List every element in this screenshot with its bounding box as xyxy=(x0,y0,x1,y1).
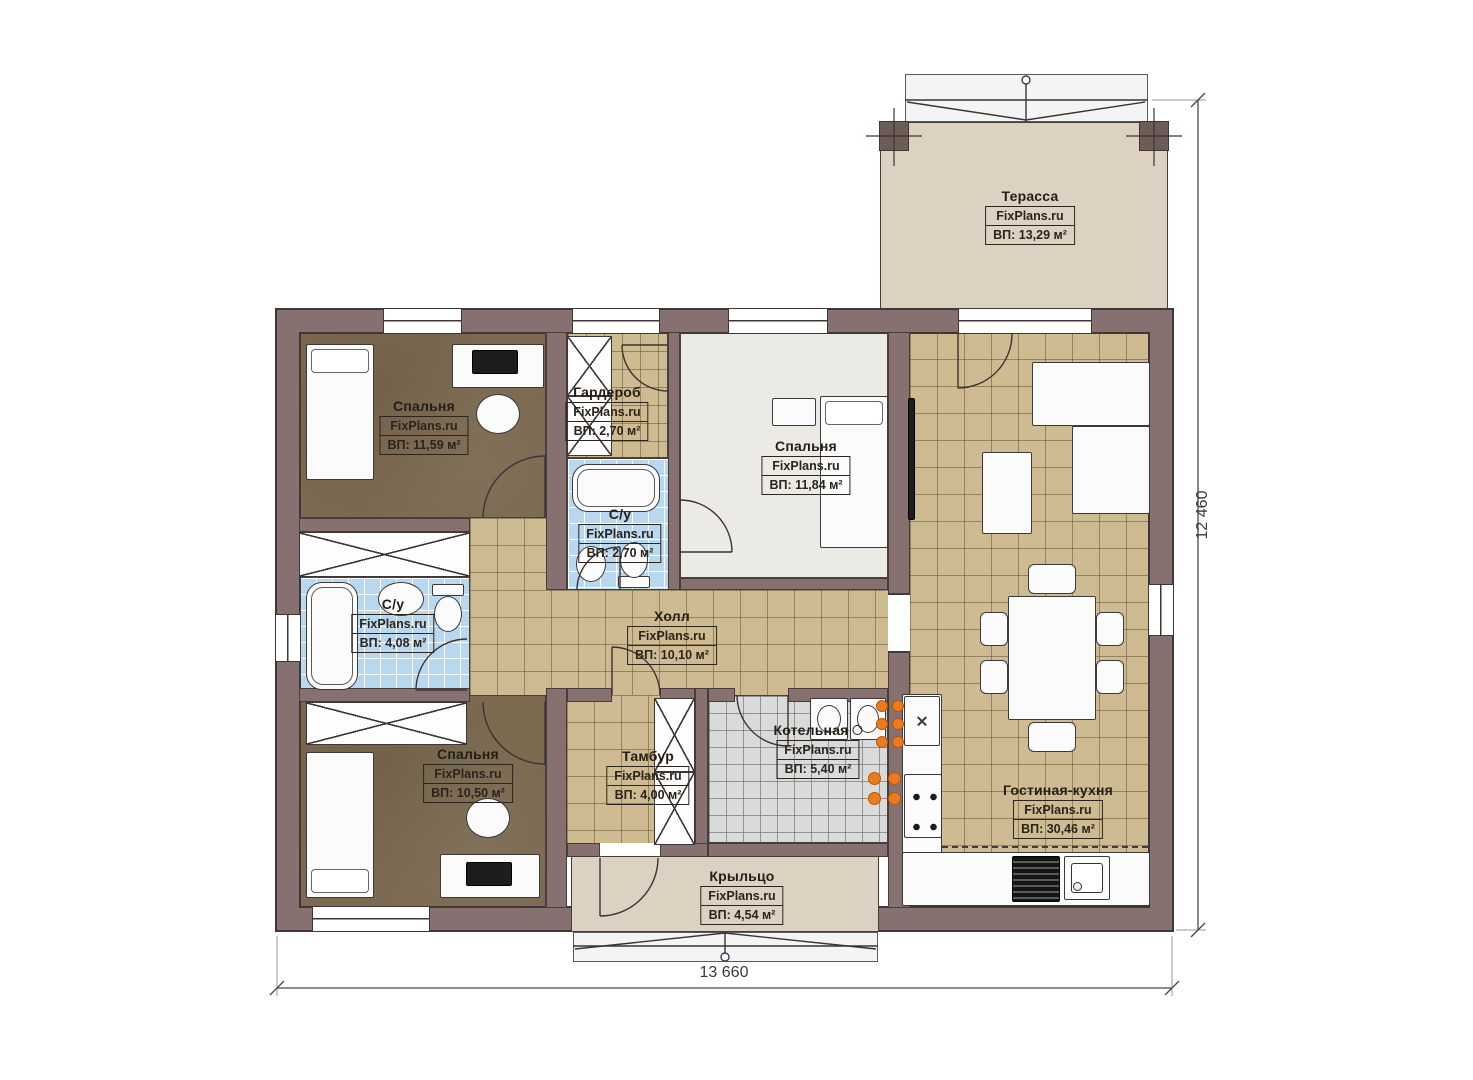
room-info-box: FixPlans.ru ВП: 2,70 м² xyxy=(578,524,661,563)
room-label-terrace: Терасса FixPlans.ru ВП: 13,29 м² xyxy=(985,188,1075,245)
bed xyxy=(306,344,374,480)
room-area: ВП: 11,59 м² xyxy=(380,435,467,454)
printer xyxy=(472,350,518,374)
window-bedroom1 xyxy=(383,308,462,334)
room-info-box: FixPlans.ru ВП: 4,54 м² xyxy=(700,886,783,925)
drain-icon xyxy=(853,725,863,735)
tv xyxy=(908,398,915,520)
window-terrace-door xyxy=(958,308,1092,334)
bathtub xyxy=(306,582,358,690)
dining-chair xyxy=(1028,722,1076,752)
dimension-height: 12 460 xyxy=(1194,491,1212,540)
room-info-box: FixPlans.ru ВП: 10,10 м² xyxy=(627,626,717,665)
room-name: Гостиная-кухня xyxy=(1003,782,1113,798)
room-name: Холл xyxy=(627,608,717,624)
watermark: FixPlans.ru xyxy=(352,615,433,633)
toilet xyxy=(434,596,462,632)
floor-plan: Терасса FixPlans.ru ВП: 13,29 м² Спальня… xyxy=(0,0,1473,1080)
dimension-width: 13 660 xyxy=(700,964,749,982)
room-info-box: FixPlans.ru ВП: 4,00 м² xyxy=(606,766,689,805)
room-area: ВП: 5,40 м² xyxy=(777,759,858,778)
room-area: ВП: 10,50 м² xyxy=(424,783,512,802)
printer xyxy=(466,862,512,886)
room-name: Гардероб xyxy=(565,384,648,400)
desk-chair xyxy=(476,394,520,434)
watermark: FixPlans.ru xyxy=(701,887,782,905)
room-name: Котельная xyxy=(773,722,848,738)
room-area: ВП: 2,70 м² xyxy=(579,543,660,562)
radiator-dot xyxy=(888,772,901,785)
room-area: ВП: 30,46 м² xyxy=(1014,819,1102,838)
bathtub xyxy=(572,464,660,512)
radiator-dot xyxy=(888,792,901,805)
room-area: ВП: 11,84 м² xyxy=(762,475,849,494)
room-label-bedroom2: Спальня FixPlans.ru ВП: 11,84 м² xyxy=(761,438,850,495)
watermark: FixPlans.ru xyxy=(986,207,1074,225)
watermark: FixPlans.ru xyxy=(424,765,512,783)
watermark: FixPlans.ru xyxy=(566,403,647,421)
room-name: Спальня xyxy=(379,398,468,414)
wall-bedroom3-top xyxy=(299,688,470,702)
window-bedroom2 xyxy=(728,308,828,334)
window-wardrobe xyxy=(572,308,660,334)
room-label-hall: Холл FixPlans.ru ВП: 10,10 м² xyxy=(627,608,717,665)
room-info-box: FixPlans.ru ВП: 30,46 м² xyxy=(1013,800,1103,839)
dining-chair xyxy=(1096,660,1124,694)
terrace-column-left xyxy=(879,121,909,151)
room-label-porch: Крыльцо FixPlans.ru ВП: 4,54 м² xyxy=(700,868,783,925)
watermark: FixPlans.ru xyxy=(777,741,858,759)
room-name: Терасса xyxy=(985,188,1075,204)
radiator-dot xyxy=(876,736,888,748)
window-bedroom3 xyxy=(312,906,430,932)
upper-cabinet-line xyxy=(942,846,1148,848)
room-info-box: FixPlans.ru ВП: 13,29 м² xyxy=(985,206,1075,245)
room-name: Спальня xyxy=(761,438,850,454)
terrace-steps xyxy=(905,74,1148,122)
room-area: ВП: 13,29 м² xyxy=(986,225,1074,244)
room-area: ВП: 4,54 м² xyxy=(701,905,782,924)
dining-table xyxy=(1008,596,1096,720)
wall-wardrobe-right xyxy=(668,332,680,590)
radiator-dot xyxy=(892,718,904,730)
hall-living-opening xyxy=(888,594,910,652)
radiator-dot xyxy=(892,700,904,712)
porch-steps xyxy=(573,932,878,962)
room-label-boiler: Котельная FixPlans.ru ВП: 5,40 м² xyxy=(773,722,862,779)
room-label-wc-big: С/у FixPlans.ru ВП: 4,08 м² xyxy=(351,596,434,653)
dining-chair xyxy=(1028,564,1076,594)
wall-tambur-top-left xyxy=(567,688,612,702)
terrace-column-right xyxy=(1139,121,1169,151)
kitchen-sink xyxy=(1064,856,1110,900)
room-label-bedroom3: Спальня FixPlans.ru ВП: 10,50 м² xyxy=(423,746,513,803)
wall-tambur-right xyxy=(695,688,708,857)
room-area: ВП: 2,70 м² xyxy=(566,421,647,440)
wall-bedroom2-bottom xyxy=(680,578,888,590)
bedroom3-closet xyxy=(306,702,467,745)
room-name: С/у xyxy=(351,596,434,612)
room-label-living: Гостиная-кухня FixPlans.ru ВП: 30,46 м² xyxy=(1003,782,1113,839)
dishwasher xyxy=(1012,856,1060,902)
toilet-tank xyxy=(432,584,464,596)
window-wc-big xyxy=(275,614,301,662)
watermark: FixPlans.ru xyxy=(1014,801,1102,819)
wall-bedroom1-right xyxy=(546,332,567,590)
room-info-box: FixPlans.ru ВП: 5,40 м² xyxy=(776,740,859,779)
watermark: FixPlans.ru xyxy=(579,525,660,543)
radiator-dot xyxy=(868,792,881,805)
room-area: ВП: 10,10 м² xyxy=(628,645,716,664)
watermark: FixPlans.ru xyxy=(628,627,716,645)
radiator-dot xyxy=(892,736,904,748)
room-info-box: FixPlans.ru ВП: 10,50 м² xyxy=(423,764,513,803)
radiator-dot xyxy=(868,772,881,785)
room-label-wc-small: С/у FixPlans.ru ВП: 2,70 м² xyxy=(578,506,661,563)
room-info-box: FixPlans.ru ВП: 11,59 м² xyxy=(379,416,468,455)
wall-bedroom3-right xyxy=(546,688,567,908)
room-info-box: FixPlans.ru ВП: 11,84 м² xyxy=(761,456,850,495)
dining-chair xyxy=(980,660,1008,694)
watermark: FixPlans.ru xyxy=(607,767,688,785)
desk-chair xyxy=(466,798,510,838)
room-info-box: FixPlans.ru ВП: 4,08 м² xyxy=(351,614,434,653)
room-area: ВП: 4,00 м² xyxy=(607,785,688,804)
room-label-wardrobe: Гардероб FixPlans.ru ВП: 2,70 м² xyxy=(565,384,648,441)
dining-chair xyxy=(980,612,1008,646)
window-living xyxy=(1148,584,1174,636)
stove xyxy=(904,774,942,838)
wall-boiler-top-left xyxy=(708,688,735,702)
wall-tambur-bottom-right xyxy=(660,843,708,857)
wall-living-left-top xyxy=(888,332,910,594)
room-name: Крыльцо xyxy=(700,868,783,884)
radiator-dot xyxy=(876,718,888,730)
bed xyxy=(306,752,374,898)
room-name: Спальня xyxy=(423,746,513,762)
wall-bedroom1-bottom xyxy=(299,518,470,532)
watermark: FixPlans.ru xyxy=(762,457,849,475)
fridge xyxy=(904,696,940,746)
hall-closet-top xyxy=(299,532,470,577)
room-name: С/у xyxy=(578,506,661,522)
coffee-table xyxy=(982,452,1032,534)
wall-boiler-bottom xyxy=(708,843,888,857)
room-area: ВП: 4,08 м² xyxy=(352,633,433,652)
room-name-row: Котельная xyxy=(773,722,862,738)
room-label-bedroom1: Спальня FixPlans.ru ВП: 11,59 м² xyxy=(379,398,468,455)
room-name: Тамбур xyxy=(606,748,689,764)
radiator-dot xyxy=(876,700,888,712)
dining-chair xyxy=(1096,612,1124,646)
wall-tambur-bottom-left xyxy=(567,843,600,857)
room-label-tambur: Тамбур FixPlans.ru ВП: 4,00 м² xyxy=(606,748,689,805)
nightstand xyxy=(772,398,816,426)
watermark: FixPlans.ru xyxy=(380,417,467,435)
sofa-seat-right xyxy=(1072,426,1150,514)
room-info-box: FixPlans.ru ВП: 2,70 м² xyxy=(565,402,648,441)
sofa-seat-top xyxy=(1032,362,1150,426)
